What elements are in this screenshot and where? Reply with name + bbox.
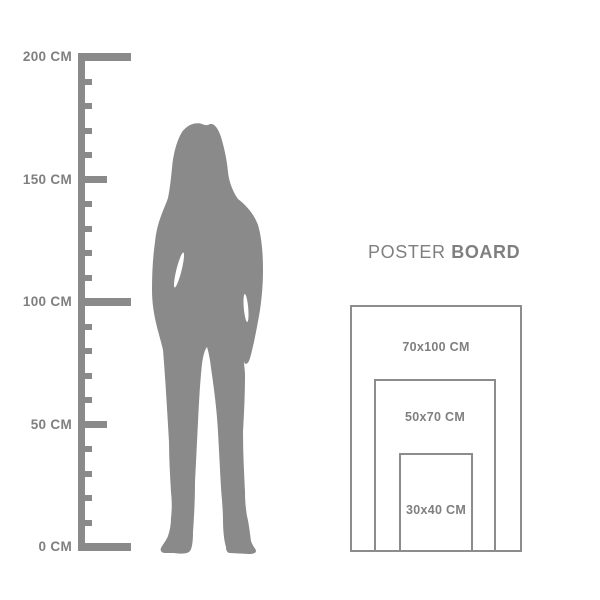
poster-size-label-30x40: 30x40 CM <box>401 502 471 518</box>
ruler-tick-20cm <box>78 495 92 501</box>
ruler-tick-150cm <box>78 176 107 183</box>
ruler-label-50cm: 50 CM <box>0 417 72 433</box>
ruler-label-100cm: 100 CM <box>0 294 72 310</box>
poster-size-label-70x100: 70x100 CM <box>352 339 520 355</box>
panel-title: POSTER BOARD <box>368 242 520 263</box>
ruler-tick-170cm <box>78 128 92 134</box>
ruler-tick-200cm <box>78 53 131 61</box>
ruler-tick-30cm <box>78 471 92 477</box>
poster-size-label-50x70: 50x70 CM <box>376 409 494 425</box>
ruler-tick-120cm <box>78 250 92 256</box>
ruler-tick-50cm <box>78 421 107 428</box>
poster-size-guide-diagram: 200 CM150 CM100 CM50 CM0 CM POSTER BOARD… <box>0 0 600 600</box>
ruler-tick-190cm <box>78 79 92 85</box>
ruler-tick-130cm <box>78 226 92 232</box>
ruler-tick-70cm <box>78 373 92 379</box>
silhouette-shape <box>152 123 263 554</box>
ruler-label-0cm: 0 CM <box>0 539 72 555</box>
ruler-tick-90cm <box>78 324 92 330</box>
ruler-tick-180cm <box>78 103 92 109</box>
ruler-tick-100cm <box>78 298 131 306</box>
ruler-tick-160cm <box>78 152 92 158</box>
person-silhouette <box>150 120 265 556</box>
panel-title-regular: POSTER <box>368 242 446 262</box>
ruler-tick-40cm <box>78 446 92 452</box>
ruler-tick-110cm <box>78 275 92 281</box>
ruler-tick-0cm <box>78 543 131 551</box>
panel-title-bold: BOARD <box>451 242 520 262</box>
ruler-tick-10cm <box>78 520 92 526</box>
poster-size-rect-30x40: 30x40 CM <box>399 453 473 552</box>
ruler-tick-60cm <box>78 397 92 403</box>
ruler-label-200cm: 200 CM <box>0 49 72 65</box>
ruler-label-150cm: 150 CM <box>0 172 72 188</box>
ruler-tick-80cm <box>78 348 92 354</box>
ruler-tick-140cm <box>78 201 92 207</box>
